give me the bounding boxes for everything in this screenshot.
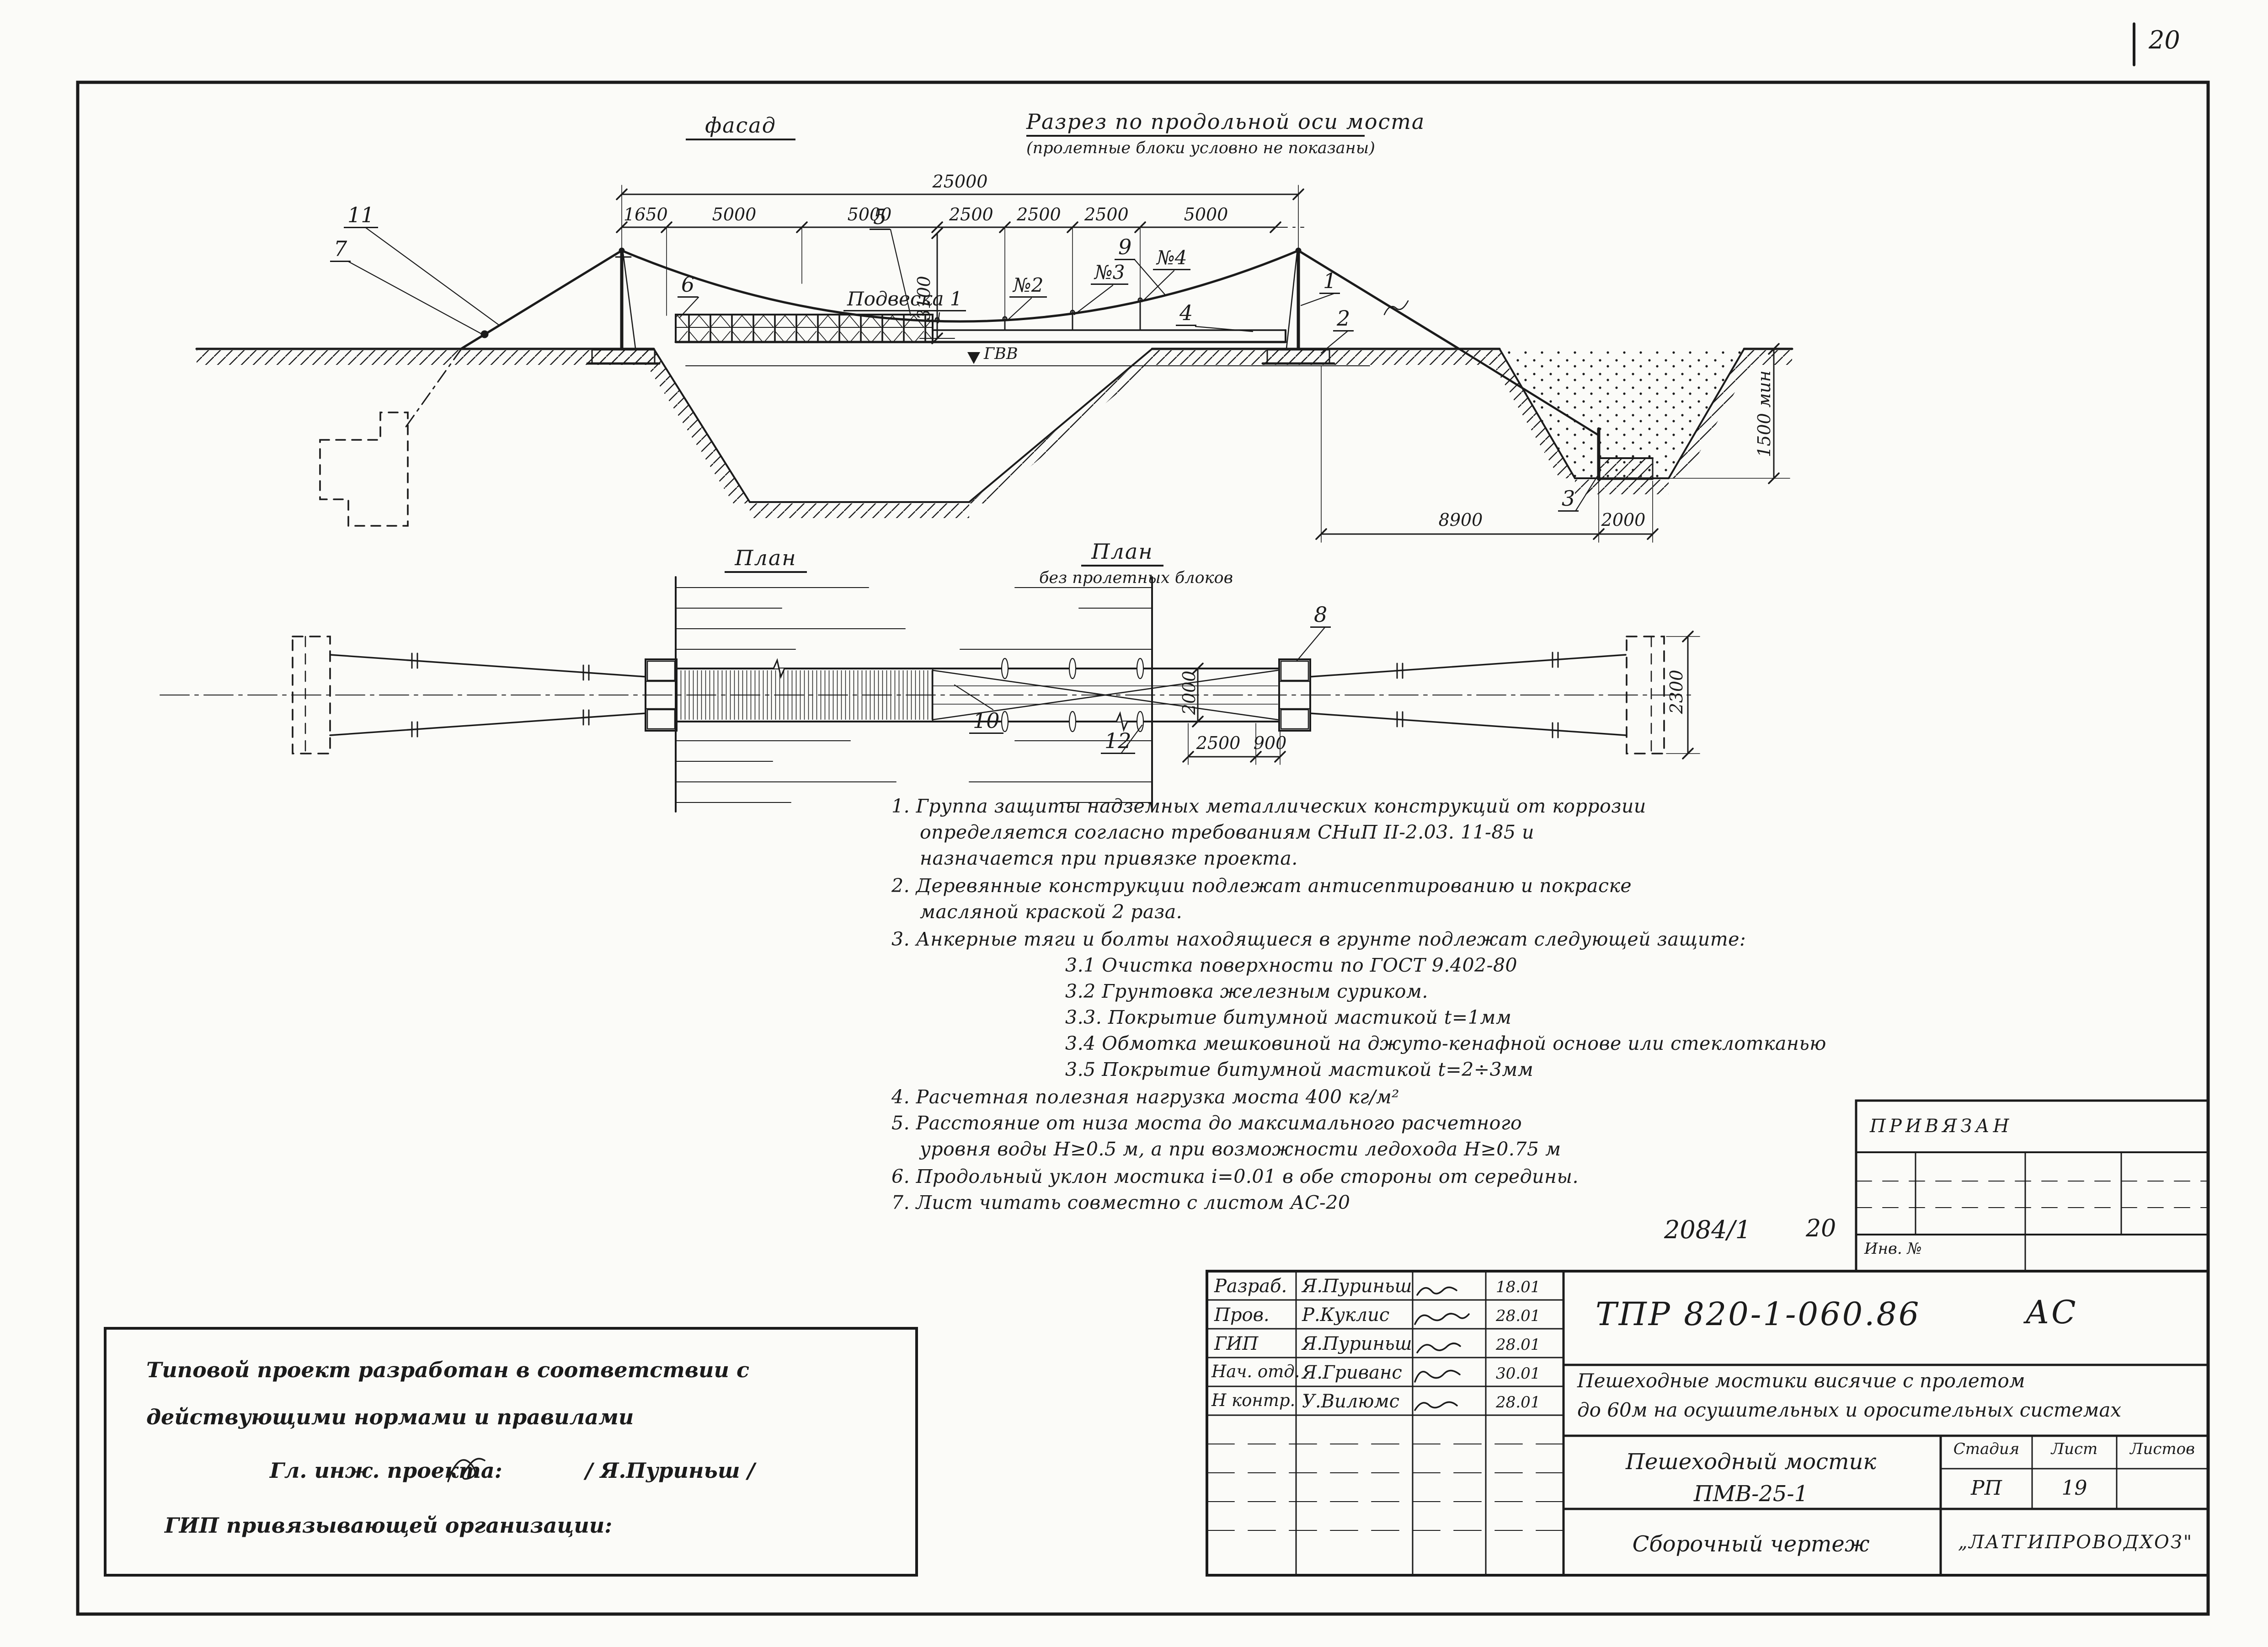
dim-total: 25000 xyxy=(928,173,992,191)
note-line: 3.4 Обмотка мешковиной на джуто-кенафной… xyxy=(1065,1034,1826,1053)
name-nachotd: Я.Гриванс xyxy=(1302,1363,1402,1382)
note-line: 3.1 Очистка поверхности по ГОСТ 9.402-80 xyxy=(1065,956,1517,975)
note-line: 1. Группа защиты надземных металлических… xyxy=(891,797,1646,816)
note-line: 5. Расстояние от низа моста до максималь… xyxy=(891,1113,1522,1133)
leaders xyxy=(348,228,1600,754)
facade-title: фасад xyxy=(686,114,795,140)
part-label-hanger3: №3 xyxy=(1091,262,1128,285)
project-name-line1: Пешеходные мостики висячие с пролетом xyxy=(1577,1371,2025,1391)
part-label-7: 7 xyxy=(330,238,351,262)
dim-pit-offset: 8900 xyxy=(1426,511,1495,529)
drawing-sheet: 20 2084/1 20 ПРИВЯЗАН Инв. № фасад Разре… xyxy=(0,0,2268,1647)
project-name-line2: до 60м на осушительных и оросительных си… xyxy=(1577,1400,2121,1420)
doc-number-sheet: 20 xyxy=(1806,1216,1836,1241)
attached-stamp: ПРИВЯЗАН xyxy=(1870,1117,2012,1136)
doc-number: 2084/1 xyxy=(1664,1217,1751,1243)
dim-pit-depth: 1500 мин xyxy=(1756,348,1774,457)
part-label-3: 3 xyxy=(1558,487,1579,512)
role-razrab: Разраб. xyxy=(1214,1277,1287,1296)
doc-mark: АС xyxy=(2025,1296,2078,1330)
hangers xyxy=(935,298,1142,330)
part-label-1: 1 xyxy=(1319,270,1340,294)
left-stamp-line4: ГИП привязывающей организации: xyxy=(165,1514,612,1536)
part-label-12: 12 xyxy=(1101,730,1135,754)
name-nkontr: У.Вилюмс xyxy=(1302,1392,1399,1411)
part-label-4: 4 xyxy=(1176,302,1196,326)
sheet-label: Лист xyxy=(2032,1441,2117,1458)
part-label-11: 11 xyxy=(344,204,378,228)
section-title: Разрез по продольной оси моста xyxy=(1026,111,1365,137)
role-nachotd: Нач. отд. xyxy=(1211,1363,1300,1381)
part-label-10: 10 xyxy=(969,710,1003,734)
name-razrab: Я.Пуриньш xyxy=(1302,1277,1412,1296)
note-line: 3.2 Грунтовка железным суриком. xyxy=(1065,982,1428,1001)
part-label-hanger1: Подвеска 1 xyxy=(843,289,966,311)
note-line: масляной краской 2 раза. xyxy=(920,902,1182,922)
sheet-value: 19 xyxy=(2032,1478,2117,1499)
stage-label: Стадия xyxy=(1941,1441,2032,1458)
dim-plan-900: 900 xyxy=(1247,734,1293,753)
part-label-hanger4: №4 xyxy=(1153,248,1190,270)
date-nachotd: 30.01 xyxy=(1496,1366,1540,1382)
dim-plan-anchor: 2300 xyxy=(1668,644,1686,740)
note-line: 6. Продольный уклон мостика i=0.01 в обе… xyxy=(891,1167,1579,1187)
stage-value: РП xyxy=(1941,1478,2032,1499)
organization: „ЛАТГИПРОВОДХОЗ" xyxy=(1943,1533,2208,1552)
dim-seg-5000a: 5000 xyxy=(711,206,757,224)
dim-seg-5000c: 5000 xyxy=(1183,206,1229,224)
drawing-type: Сборочный чертеж xyxy=(1568,1533,1934,1556)
plan-right-subtitle: без пролетных блоков xyxy=(1038,570,1234,587)
date-prov: 28.01 xyxy=(1496,1308,1540,1325)
left-buried-anchor xyxy=(320,412,408,526)
water-level-mark xyxy=(967,352,980,364)
part-label-2: 2 xyxy=(1333,307,1354,332)
water-level-label: ГВВ xyxy=(984,346,1018,363)
left-stamp-line3b: / Я.Пуриньш / xyxy=(585,1460,755,1481)
part-label-8: 8 xyxy=(1310,604,1331,628)
dim-seg-2500b: 2500 xyxy=(1017,206,1061,224)
note-line: назначается при привязке проекта. xyxy=(920,849,1298,868)
plan-left-title: План xyxy=(725,547,807,573)
part-label-hanger2: №2 xyxy=(1009,275,1047,298)
note-line: 2. Деревянные конструкции подлежат антис… xyxy=(891,876,1632,896)
left-stamp-line1: Типовой проект разработан в соответствии… xyxy=(146,1359,749,1381)
plan-right-title: План xyxy=(1081,540,1163,567)
date-gip: 28.01 xyxy=(1496,1337,1540,1353)
date-nkontr: 28.01 xyxy=(1496,1395,1540,1411)
note-line: 3.5 Покрытие битумной мастикой t=2÷3мм xyxy=(1065,1060,1533,1080)
sheet-number: 20 xyxy=(2149,27,2180,53)
note-line: уровня воды Н≥0.5 м, а при возможности л… xyxy=(920,1139,1561,1159)
note-line: 7. Лист читать совместно с листом АС-20 xyxy=(891,1193,1350,1213)
note-line: 3. Анкерные тяги и болты находящиеся в г… xyxy=(891,930,1746,949)
dim-seg-2500a: 2500 xyxy=(949,206,993,224)
part-label-6: 6 xyxy=(678,273,698,298)
plan-deck-planks xyxy=(677,670,933,720)
role-gip: ГИП xyxy=(1214,1334,1258,1353)
dim-plan-2500: 2500 xyxy=(1189,734,1248,753)
role-prov: Пров. xyxy=(1214,1305,1270,1325)
deck-lattice xyxy=(676,315,933,342)
role-nkontr: Н контр. xyxy=(1211,1392,1295,1410)
name-gip: Я.Пуриньш xyxy=(1302,1334,1412,1353)
sheets-label: Листов xyxy=(2117,1441,2208,1458)
note-line: 4. Расчетная полезная нагрузка моста 400… xyxy=(891,1087,1399,1107)
part-label-9: 9 xyxy=(1115,236,1135,260)
object-name-line1: Пешеходный мостик xyxy=(1568,1450,1934,1473)
section-subtitle: (пролетные блоки условно не показаны) xyxy=(1026,140,1365,157)
left-stamp-line2: действующими нормами и правилами xyxy=(146,1406,634,1428)
right-backstay xyxy=(1298,251,1458,348)
note-line: определяется согласно требованиям СНиП I… xyxy=(920,823,1534,842)
part-label-5: 5 xyxy=(870,206,890,230)
name-prov: Р.Куклис xyxy=(1302,1305,1389,1325)
object-name-line2: ПМВ-25-1 xyxy=(1568,1482,1934,1505)
dim-seg-2500c: 2500 xyxy=(1084,206,1128,224)
dim-plan-deck-width: 2000 xyxy=(1180,663,1199,722)
doc-code: ТПР 820-1-060.86 xyxy=(1596,1298,1921,1332)
inventory-label: Инв. № xyxy=(1864,1241,1922,1257)
dim-seg-1650: 1650 xyxy=(624,206,666,224)
left-stamp-line3: Гл. инж. проекта: xyxy=(270,1460,502,1481)
dim-pit-width: 2000 xyxy=(1594,511,1653,529)
date-razrab: 18.01 xyxy=(1496,1279,1540,1296)
note-line: 3.3. Покрытие битумной мастикой t=1мм xyxy=(1065,1008,1511,1027)
